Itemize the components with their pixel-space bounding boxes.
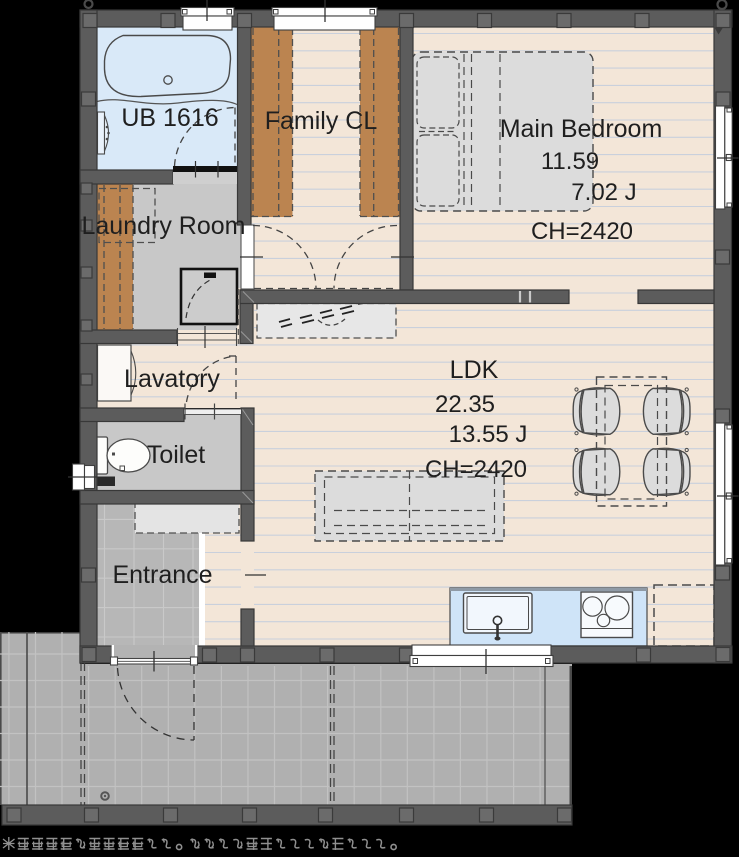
svg-text:Family CL: Family CL [265, 107, 378, 135]
svg-text:Laundry Room: Laundry Room [82, 212, 246, 240]
svg-text:7.02 J: 7.02 J [571, 179, 636, 206]
svg-text:CH=2420: CH=2420 [425, 456, 527, 483]
svg-text:UB 1616: UB 1616 [121, 104, 218, 132]
svg-text:Toilet: Toilet [147, 441, 205, 469]
svg-text:Entrance: Entrance [112, 561, 212, 589]
svg-text:11.59: 11.59 [541, 148, 599, 175]
svg-text:Main Bedroom: Main Bedroom [500, 115, 663, 143]
svg-text:CH=2420: CH=2420 [531, 218, 633, 245]
svg-text:13.55 J: 13.55 J [449, 421, 528, 448]
svg-text:LDK: LDK [450, 356, 499, 384]
svg-text:22.35: 22.35 [435, 391, 495, 418]
svg-text:Lavatory: Lavatory [124, 365, 220, 393]
